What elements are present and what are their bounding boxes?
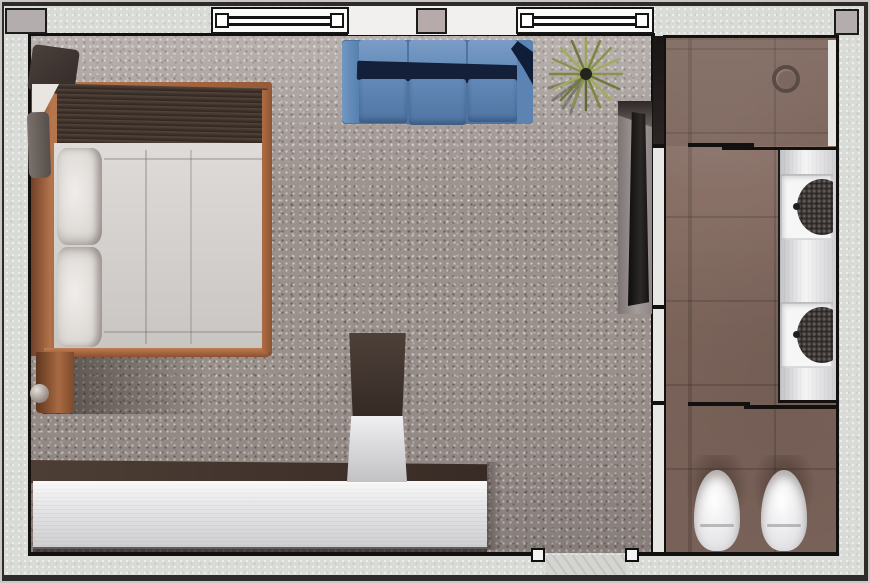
duvet-seam xyxy=(104,158,262,160)
chair-seat xyxy=(347,416,407,482)
window-1-end-block xyxy=(215,13,229,28)
window-1-end-block xyxy=(330,13,344,28)
bed-post-ball-finial xyxy=(30,384,49,403)
shower-bench-strip xyxy=(828,40,836,146)
column-top-right xyxy=(834,9,859,35)
entry-door-jamb xyxy=(625,548,639,562)
window-2-glazing xyxy=(534,16,635,26)
bed-pillow xyxy=(57,247,102,347)
bed-side-pillow xyxy=(27,112,51,179)
floor-plan-render xyxy=(0,0,870,583)
window-2-end-block xyxy=(520,13,534,28)
vanity-edge-bottom xyxy=(778,400,836,403)
bed-pillow xyxy=(57,148,102,245)
duvet-seam xyxy=(145,150,147,344)
wall-line-top-bathroom xyxy=(663,35,839,38)
window-1-glazing xyxy=(229,16,330,26)
wall-line-bottom-bathroom xyxy=(651,552,839,556)
vanity-edge-top xyxy=(778,147,836,150)
sink-basin xyxy=(797,179,833,235)
sink xyxy=(780,302,833,368)
plant-center xyxy=(580,68,592,80)
wall-line-right xyxy=(836,35,839,556)
toilet-seat-line xyxy=(700,524,734,527)
duvet-seam xyxy=(190,150,192,344)
sink xyxy=(780,174,833,240)
desk-bottom-shadow xyxy=(33,547,487,554)
duvet-seam xyxy=(104,331,262,333)
sink-faucet-dot xyxy=(793,203,800,210)
partition-edge-right xyxy=(664,36,666,553)
toilet-compartment-screen xyxy=(744,405,836,409)
column-top-left xyxy=(5,8,47,34)
entry-door-leaf xyxy=(546,555,626,575)
column-top-center xyxy=(416,8,447,34)
sink-faucet-dot xyxy=(793,331,800,338)
sink-basin xyxy=(797,307,833,363)
shower-screen xyxy=(722,147,782,150)
sofa-seat-cushion xyxy=(468,79,517,122)
bed-foot-rail xyxy=(44,348,268,357)
sofa-seat-cushion xyxy=(359,79,407,123)
sofa-seat-cushion xyxy=(409,79,466,125)
sofa-arm-left xyxy=(342,41,359,123)
entry-door-jamb xyxy=(531,548,545,562)
desk-side-shadow xyxy=(487,462,501,550)
bidet-seat-line xyxy=(767,524,801,527)
bed-foot-post xyxy=(36,352,74,413)
chair-backrest xyxy=(348,333,407,417)
toilet-compartment-screen xyxy=(688,402,750,406)
window-2-end-block xyxy=(635,13,649,28)
shower-drain xyxy=(772,65,800,93)
desk-front xyxy=(33,481,487,549)
bed-side-rail xyxy=(262,90,272,352)
bed-throw-blanket xyxy=(57,84,268,152)
